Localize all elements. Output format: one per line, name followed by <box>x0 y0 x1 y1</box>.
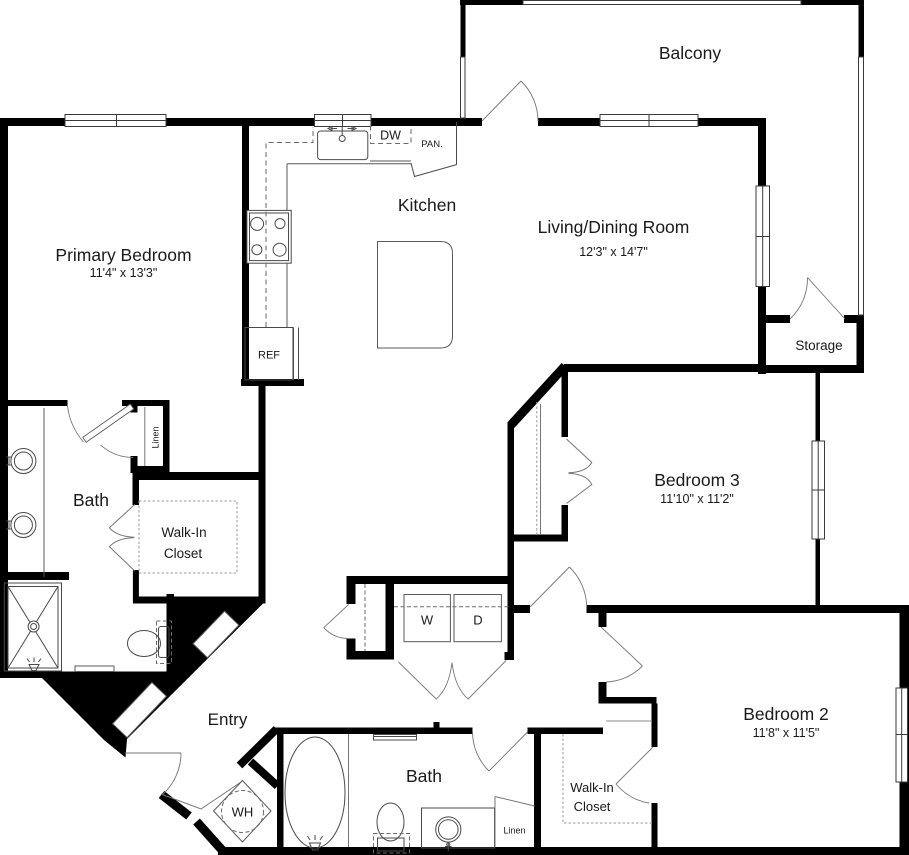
svg-text:Walk-In: Walk-In <box>161 525 206 540</box>
svg-text:DW: DW <box>380 129 401 143</box>
svg-text:11'10" x 11'2": 11'10" x 11'2" <box>660 492 734 506</box>
svg-text:Entry: Entry <box>208 710 248 729</box>
svg-text:Storage: Storage <box>795 338 842 353</box>
svg-text:Walk-In: Walk-In <box>570 780 614 795</box>
svg-text:Kitchen: Kitchen <box>398 195 456 215</box>
svg-text:12'3" x 14'7": 12'3" x 14'7" <box>579 245 648 259</box>
svg-text:Closet: Closet <box>164 546 203 561</box>
svg-text:11'4" x 13'3": 11'4" x 13'3" <box>90 266 158 280</box>
svg-text:11'8" x 11'5": 11'8" x 11'5" <box>753 726 820 740</box>
svg-text:Balcony: Balcony <box>659 43 722 63</box>
svg-text:Linen: Linen <box>503 826 525 836</box>
svg-text:Bedroom 3: Bedroom 3 <box>654 470 740 490</box>
svg-text:Linen: Linen <box>151 426 161 448</box>
svg-text:Bath: Bath <box>406 766 442 786</box>
svg-text:W: W <box>421 613 434 628</box>
svg-text:WH: WH <box>232 805 254 820</box>
svg-text:Closet: Closet <box>574 799 611 814</box>
svg-text:Primary Bedroom: Primary Bedroom <box>55 245 191 265</box>
svg-text:Living/Dining Room: Living/Dining Room <box>538 217 690 237</box>
svg-text:Bath: Bath <box>73 490 109 510</box>
svg-text:REF: REF <box>258 350 280 362</box>
svg-text:Bedroom 2: Bedroom 2 <box>743 704 829 724</box>
svg-text:PAN.: PAN. <box>421 139 442 150</box>
svg-text:D: D <box>473 613 482 628</box>
